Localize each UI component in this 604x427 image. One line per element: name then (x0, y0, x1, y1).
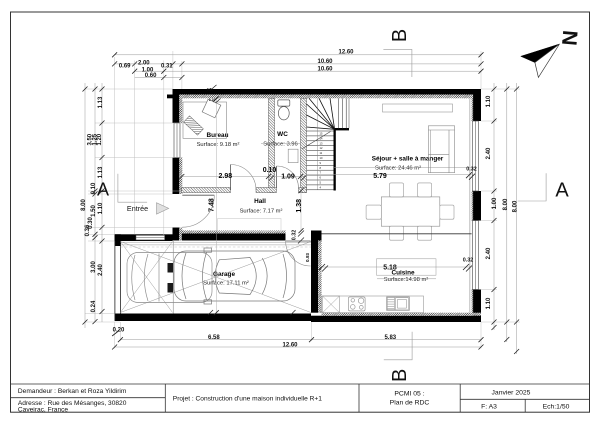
svg-text:0.24: 0.24 (91, 300, 97, 312)
svg-text:8.00: 8.00 (513, 200, 519, 212)
svg-text:Cuisine: Cuisine (391, 269, 415, 276)
svg-text:Surface: 7.17 m²: Surface: 7.17 m² (240, 208, 283, 214)
svg-text:1.20: 1.20 (97, 133, 103, 145)
svg-text:A: A (555, 180, 569, 202)
svg-text:8.00: 8.00 (81, 199, 87, 211)
svg-text:Entrée: Entrée (127, 204, 148, 213)
svg-text:0.50: 0.50 (207, 87, 214, 91)
svg-text:0.20: 0.20 (113, 328, 125, 334)
svg-text:Janvier 2025: Janvier 2025 (492, 389, 531, 396)
svg-text:F: A3: F: A3 (481, 403, 497, 410)
svg-text:1.10: 1.10 (486, 297, 492, 309)
svg-text:Projet : Construction d'une m: Projet : Construction d'une maison indiv… (173, 396, 322, 403)
svg-text:Séjour + salle à manger: Séjour + salle à manger (372, 156, 444, 163)
svg-text:0.93: 0.93 (305, 253, 310, 262)
svg-text:0.32: 0.32 (463, 258, 474, 264)
svg-text:5.79: 5.79 (373, 173, 387, 180)
svg-text:1.10: 1.10 (98, 202, 104, 214)
svg-text:0.69: 0.69 (119, 64, 131, 70)
svg-text:1.13: 1.13 (98, 96, 104, 108)
svg-text:0.10: 0.10 (91, 182, 97, 194)
svg-text:A: A (97, 180, 109, 200)
svg-text:12.60: 12.60 (282, 343, 298, 349)
svg-text:0.60: 0.60 (145, 73, 157, 79)
svg-text:PCMI 05 :: PCMI 05 : (394, 391, 424, 398)
svg-text:B: B (389, 369, 411, 382)
svg-text:6.58: 6.58 (208, 335, 220, 341)
svg-text:N: N (558, 29, 582, 46)
svg-text:0.32: 0.32 (292, 230, 298, 241)
svg-text:2.40: 2.40 (98, 264, 104, 276)
svg-text:0.36: 0.36 (85, 224, 91, 236)
svg-text:Surface: 17.11 m²: Surface: 17.11 m² (203, 281, 249, 287)
svg-text:2.40: 2.40 (486, 147, 492, 159)
svg-text:Surface: 9.18 m²: Surface: 9.18 m² (197, 142, 240, 148)
svg-text:10.60: 10.60 (317, 66, 333, 72)
svg-text:Demandeur : Berkan et Roza Yil: Demandeur : Berkan et Roza Yildirim (18, 388, 127, 395)
svg-text:B: B (389, 29, 411, 42)
svg-text:Caveirac, France: Caveirac, France (18, 407, 69, 414)
svg-text:7.48: 7.48 (208, 198, 215, 212)
svg-text:2.40: 2.40 (486, 247, 492, 259)
svg-text:12.60: 12.60 (338, 50, 354, 56)
svg-text:Plan de RDC: Plan de RDC (390, 400, 430, 407)
svg-text:2.00: 2.00 (138, 61, 150, 67)
svg-text:1.38: 1.38 (296, 199, 303, 213)
svg-text:0.10: 0.10 (209, 98, 216, 102)
svg-text:1.09: 1.09 (281, 173, 295, 180)
svg-text:0.32: 0.32 (466, 166, 477, 172)
svg-text:0.31: 0.31 (161, 64, 173, 70)
svg-text:3.00: 3.00 (91, 261, 97, 273)
svg-text:0.10: 0.10 (263, 167, 277, 174)
svg-text:1.00: 1.00 (492, 197, 498, 209)
svg-text:Surface:14.98 m²: Surface:14.98 m² (384, 277, 429, 283)
svg-text:1.13: 1.13 (98, 166, 104, 178)
svg-text:2.98: 2.98 (218, 173, 232, 180)
svg-text:1.10: 1.10 (486, 95, 492, 107)
svg-text:Ech:1/50: Ech:1/50 (543, 403, 570, 410)
svg-text:8.00: 8.00 (503, 198, 509, 210)
svg-text:1.50: 1.50 (91, 205, 97, 217)
svg-text:5.83: 5.83 (384, 335, 396, 341)
svg-text:WC: WC (277, 131, 288, 138)
svg-text:Hall: Hall (254, 198, 266, 205)
svg-text:Surface: 3.96: Surface: 3.96 (263, 142, 297, 148)
svg-text:10.60: 10.60 (317, 59, 333, 65)
svg-text:Bureau: Bureau (206, 132, 228, 139)
svg-text:Surface: 24.46 m²: Surface: 24.46 m² (375, 166, 421, 172)
